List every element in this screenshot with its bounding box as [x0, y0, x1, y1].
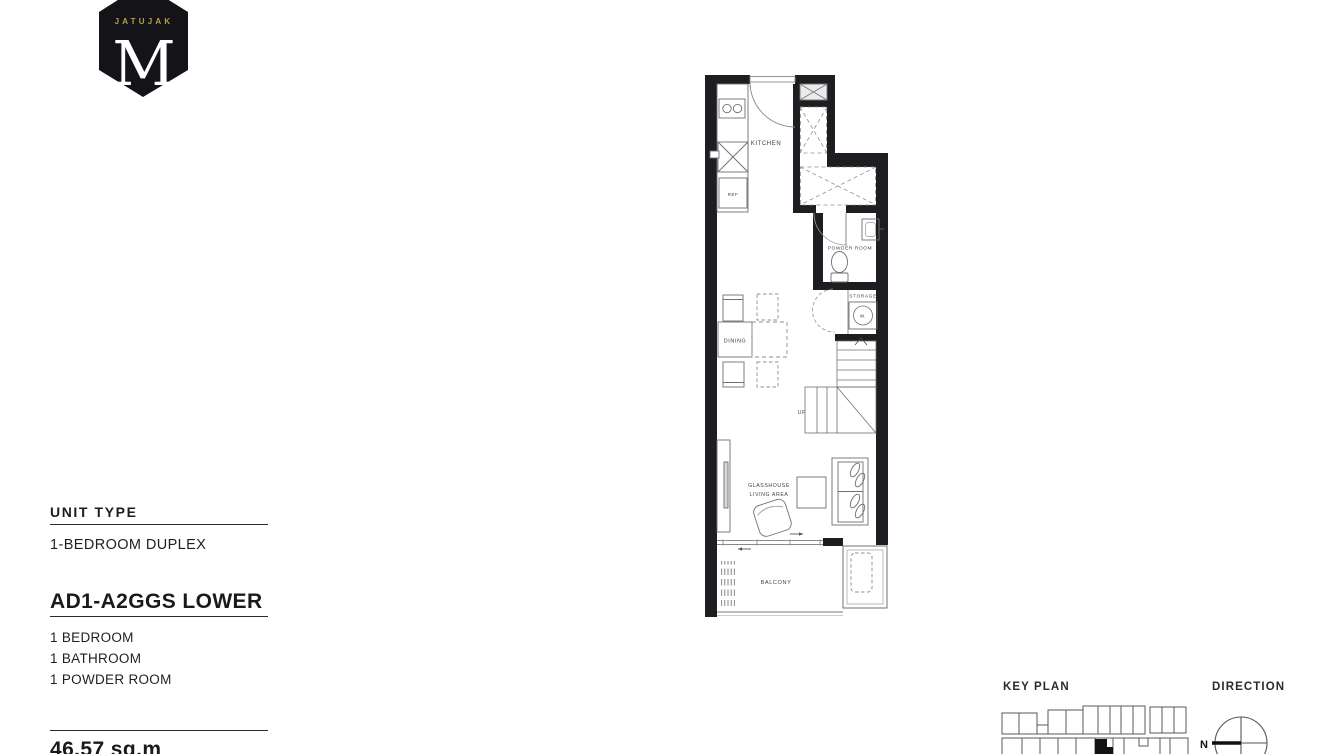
wall-storage-bottom — [835, 334, 888, 341]
feature-list: 1 BEDROOM 1 BATHROOM 1 POWDER ROOM — [50, 627, 172, 690]
keyplan-block — [1150, 707, 1186, 733]
divider-line — [50, 730, 268, 731]
wall-right-upper — [827, 75, 835, 158]
divider-line — [50, 616, 268, 617]
unit-type-heading: UNIT TYPE — [50, 504, 138, 520]
feature-bedroom: 1 BEDROOM — [50, 627, 172, 648]
feature-bathroom: 1 BATHROOM — [50, 648, 172, 669]
unit-area: 46.57 sq.m — [50, 738, 161, 754]
keyplan-block — [1083, 706, 1145, 734]
washer-label: W. — [860, 314, 867, 319]
keyplan-highlight-unit — [1095, 739, 1113, 754]
compass: N — [1200, 717, 1267, 754]
unit-type-value: 1-BEDROOM DUPLEX — [50, 537, 206, 553]
wall-powder-bottom — [813, 282, 888, 290]
project-logo: JATUJAK M — [94, 0, 194, 105]
wall-void-bottom-left — [793, 205, 816, 213]
floor-plan: REF KITCHEN POWDER ROOM STORAGE W. — [700, 70, 890, 626]
divider-line — [50, 524, 268, 525]
feature-powder: 1 POWDER ROOM — [50, 669, 172, 690]
planter-enclosure — [843, 546, 887, 608]
direction-heading: DIRECTION — [1212, 681, 1285, 693]
dining-label: DINING — [724, 339, 746, 345]
ref-label: REF — [728, 192, 739, 197]
keyplan-block — [1037, 725, 1048, 734]
balcony-label: BALCONY — [761, 580, 792, 586]
keyplan-notch — [1139, 738, 1148, 746]
logo-monogram: M — [112, 27, 175, 100]
tv-screen — [724, 462, 728, 508]
glasshouse-label-line1: GLASSHOUSE — [748, 483, 790, 489]
toilet-tank — [831, 273, 848, 282]
keyplan-divider — [1162, 707, 1174, 733]
keyplan-divider — [1098, 706, 1133, 734]
storage-label: STORAGE — [849, 294, 877, 300]
powder-room-label: POWDER ROOM — [828, 246, 872, 252]
key-plan-heading: KEY PLAN — [1003, 681, 1070, 693]
wall-void-bottom-right — [846, 205, 888, 213]
up-label: UP — [798, 410, 806, 416]
compass-north-label: N — [1200, 739, 1208, 751]
glasshouse-label-line2: LIVING AREA — [750, 492, 789, 498]
sink-faucet — [710, 151, 719, 158]
logo-project-name: JATUJAK — [115, 17, 174, 26]
kitchen-label: KITCHEN — [751, 141, 782, 147]
wall-powder-left — [813, 213, 823, 290]
floorplan-page: JATUJAK M UNIT TYPE 1-BEDROOM DUPLEX AD1… — [0, 0, 1342, 754]
wall-right-outer — [876, 160, 888, 545]
wall-top-left — [705, 75, 750, 84]
wall-shaft-bottom — [798, 100, 828, 107]
unit-code: AD1-A2GGS LOWER — [50, 590, 263, 614]
wall-balcony-stub — [823, 538, 843, 546]
entrance-door-leaf — [750, 77, 795, 83]
footer-graphics: N — [995, 700, 1295, 754]
ac-louvre — [719, 561, 736, 606]
